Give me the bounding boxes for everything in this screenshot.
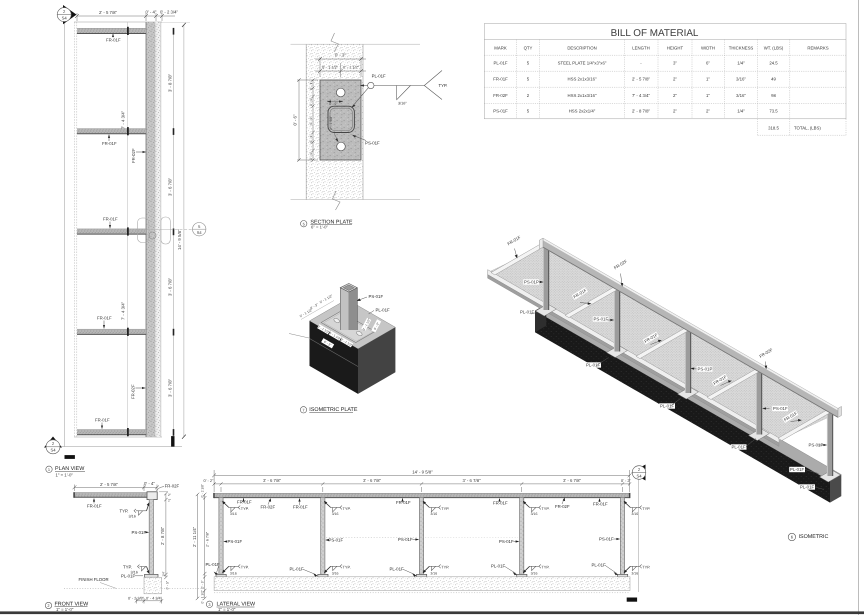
svg-text:PS-01F: PS-01F <box>398 537 413 542</box>
svg-text:PS-01F: PS-01F <box>599 537 614 542</box>
svg-text:0' - 4": 0' - 4" <box>144 481 155 486</box>
svg-text:FR-02F: FR-02F <box>493 93 508 98</box>
svg-text:FR-02F: FR-02F <box>131 384 136 399</box>
svg-text:PS-01F: PS-01F <box>329 538 344 543</box>
svg-text:3/16": 3/16" <box>736 93 746 98</box>
svg-text:3": 3" <box>673 61 677 66</box>
svg-text:PS-01F: PS-01F <box>594 317 609 322</box>
svg-text:S4: S4 <box>636 473 642 478</box>
svg-text:2": 2" <box>673 93 677 98</box>
svg-text:2": 2" <box>673 77 677 82</box>
svg-text:6" = 1'-0": 6" = 1'-0" <box>311 225 328 230</box>
svg-text:3/16: 3/16 <box>430 512 437 516</box>
svg-text:TOTAL, (LBS): TOTAL, (LBS) <box>794 126 821 131</box>
svg-text:TYP.: TYP. <box>642 506 650 511</box>
svg-text:3/16: 3/16 <box>332 512 339 516</box>
svg-text:TYP.: TYP. <box>343 506 351 511</box>
svg-text:PS-01P: PS-01P <box>524 280 539 285</box>
svg-text:0' - 2": 0' - 2" <box>204 478 215 483</box>
svg-text:3' - 6 7/8": 3' - 6 7/8" <box>263 478 282 483</box>
svg-text:PL-01F: PL-01F <box>290 567 304 572</box>
svg-text:2' - 6 7/8": 2' - 6 7/8" <box>205 531 209 547</box>
svg-text:1/4": 1/4" <box>737 61 745 66</box>
svg-text:PL-01F: PL-01F <box>790 467 804 472</box>
svg-text:3: 3 <box>208 602 210 607</box>
svg-text:PS-01P: PS-01P <box>698 367 713 372</box>
svg-text:0' - 2 1/8": 0' - 2 1/8" <box>201 484 205 497</box>
svg-text:7' - 4 3/4": 7' - 4 3/4" <box>121 301 126 320</box>
svg-text:0' - 1 1/2": 0' - 1 1/2" <box>322 66 339 70</box>
svg-text:318.5: 318.5 <box>768 126 779 131</box>
svg-text:14' - 9 5/8": 14' - 9 5/8" <box>177 229 182 250</box>
svg-text:LENGTH: LENGTH <box>632 45 649 50</box>
svg-text:1" = 1'-0": 1" = 1'-0" <box>56 472 74 477</box>
svg-text:0' - 1": 0' - 1" <box>309 134 313 142</box>
svg-text:MARK: MARK <box>494 45 507 50</box>
svg-text:0' - 2": 0' - 2" <box>621 478 632 483</box>
svg-text:3/16: 3/16 <box>430 572 437 576</box>
svg-text:3' - 8 7/8": 3' - 8 7/8" <box>168 73 173 92</box>
svg-text:ISOMETRIC PLATE: ISOMETRIC PLATE <box>309 407 358 413</box>
svg-text:1": 1" <box>706 77 710 82</box>
svg-text:2' - 5 7/8": 2' - 5 7/8" <box>632 77 651 82</box>
svg-text:FR-02F: FR-02F <box>131 148 136 163</box>
svg-text:PL-01F: PL-01F <box>121 573 135 578</box>
svg-text:BILL OF MATERIAL: BILL OF MATERIAL <box>611 28 699 39</box>
svg-text:FR-01F: FR-01F <box>87 504 102 509</box>
svg-text:7' - 4 3/4": 7' - 4 3/4" <box>121 110 126 129</box>
svg-text:FR-02F: FR-02F <box>165 484 180 489</box>
svg-text:PS-01F: PS-01F <box>132 530 147 535</box>
svg-text:PL-01F: PL-01F <box>732 445 746 450</box>
svg-text:3' - 6 7/8": 3' - 6 7/8" <box>168 177 173 196</box>
svg-text:0' - 4 3/4": 0' - 4 3/4" <box>146 597 163 601</box>
svg-text:PS-01F: PS-01F <box>773 406 788 411</box>
svg-text:TYP.: TYP. <box>123 565 132 570</box>
svg-text:TYP.: TYP. <box>541 506 549 511</box>
svg-text:3/16: 3/16 <box>531 572 538 576</box>
svg-text:0' - 1 1/2": 0' - 1 1/2" <box>343 66 360 70</box>
svg-text:FR-01F: FR-01F <box>593 502 608 507</box>
svg-text:3' - 6 7/8": 3' - 6 7/8" <box>168 277 173 296</box>
svg-text:TYP.: TYP. <box>441 506 449 511</box>
svg-text:PL-01F: PL-01F <box>800 485 814 490</box>
svg-text:S4: S4 <box>197 230 203 235</box>
svg-text:73.5: 73.5 <box>769 109 778 114</box>
svg-text:PL-01F: PL-01F <box>376 308 390 313</box>
svg-text:0' - 6": 0' - 6" <box>293 114 298 125</box>
svg-text:STEEL PLATE 1/4"x3"x6": STEEL PLATE 1/4"x3"x6" <box>558 61 607 66</box>
svg-text:FR-01F: FR-01F <box>293 505 308 510</box>
svg-text:TYP.: TYP. <box>439 83 448 88</box>
svg-text:24.5: 24.5 <box>769 61 778 66</box>
svg-text:PL-01F: PL-01F <box>493 61 507 66</box>
svg-text:2' - 5 7/8": 2' - 5 7/8" <box>100 482 119 487</box>
svg-text:2": 2" <box>706 109 710 114</box>
svg-text:0' - 2": 0' - 2" <box>329 102 338 106</box>
svg-text:1": 1" <box>706 93 710 98</box>
svg-text:FR-01F: FR-01F <box>493 77 508 82</box>
svg-text:0' - 2 3/8": 0' - 2 3/8" <box>128 597 145 601</box>
svg-text:6": 6" <box>706 61 710 66</box>
svg-text:0' - 1 1/2": 0' - 1 1/2" <box>201 590 205 603</box>
svg-text:2": 2" <box>168 499 171 503</box>
svg-text:2' - 11 1/4": 2' - 11 1/4" <box>192 526 197 547</box>
svg-text:DESCRIPTION: DESCRIPTION <box>567 45 596 50</box>
svg-text:1/4": 1/4" <box>737 109 745 114</box>
svg-text:2": 2" <box>168 493 171 497</box>
svg-text:TYP.: TYP. <box>343 565 351 570</box>
svg-text:THICKNESS: THICKNESS <box>729 45 754 50</box>
svg-text:TYP.: TYP. <box>241 506 249 511</box>
svg-text:PL-01F: PL-01F <box>586 363 600 368</box>
svg-text:2' - 5 7/8": 2' - 5 7/8" <box>99 10 118 15</box>
svg-text:PS-01F: PS-01F <box>365 140 380 145</box>
svg-text:S4: S4 <box>62 16 68 21</box>
svg-text:FR-01F: FR-01F <box>102 141 117 146</box>
svg-text:WT. (LBS): WT. (LBS) <box>764 45 784 50</box>
svg-text:0' - 5": 0' - 5" <box>201 580 205 588</box>
svg-text:0' - 2": 0' - 2" <box>309 116 313 124</box>
svg-text:98: 98 <box>771 93 776 98</box>
svg-text:FR-01F: FR-01F <box>396 500 411 505</box>
svg-text:PS-01F: PS-01F <box>228 539 243 544</box>
svg-text:HSS 2x1x3/16": HSS 2x1x3/16" <box>568 93 597 98</box>
svg-text:1: 1 <box>48 467 50 472</box>
svg-text:PLAN VIEW: PLAN VIEW <box>55 466 85 472</box>
svg-text:0' - 3": 0' - 3" <box>335 53 346 58</box>
svg-text:3/16: 3/16 <box>129 515 136 519</box>
svg-text:ISOMETRIC: ISOMETRIC <box>799 534 829 540</box>
svg-text:3/16": 3/16" <box>736 77 746 82</box>
svg-text:PL-01F: PL-01F <box>592 563 606 568</box>
svg-text:PL-01F: PL-01F <box>372 74 386 79</box>
svg-text:FR-01F: FR-01F <box>237 500 252 505</box>
svg-text:49: 49 <box>771 77 776 82</box>
svg-text:3/16: 3/16 <box>631 572 638 576</box>
svg-text:PL-01F: PL-01F <box>660 404 674 409</box>
svg-text:0' - 1 5/8": 0' - 1 5/8" <box>329 115 333 130</box>
svg-text:FR-01F: FR-01F <box>95 418 110 423</box>
svg-text:FR-01F: FR-01F <box>106 38 121 43</box>
svg-text:PL-01F: PL-01F <box>206 562 220 567</box>
svg-text:HSS 2x1x3/16": HSS 2x1x3/16" <box>568 77 597 82</box>
svg-text:PL-01F: PL-01F <box>390 567 404 572</box>
svg-text:FR-02F: FR-02F <box>261 505 276 510</box>
svg-text:7' - 4 3/4": 7' - 4 3/4" <box>632 93 651 98</box>
svg-text:2: 2 <box>47 603 49 608</box>
svg-text:14' - 9 5/8": 14' - 9 5/8" <box>412 470 433 475</box>
svg-text:3' - 6 7/8": 3' - 6 7/8" <box>168 378 173 397</box>
svg-text:PS-01F: PS-01F <box>493 109 508 114</box>
svg-text:FR-02F: FR-02F <box>555 504 570 509</box>
svg-text:TYP.: TYP. <box>120 509 129 514</box>
svg-text:3/16: 3/16 <box>631 512 638 516</box>
svg-text:QTY: QTY <box>524 45 533 50</box>
svg-text:FR-01F: FR-01F <box>97 316 112 321</box>
svg-text:TYP.: TYP. <box>441 565 449 570</box>
svg-text:5: 5 <box>303 221 305 226</box>
svg-text:1" = 1'-0": 1" = 1'-0" <box>56 607 74 612</box>
svg-text:0' - 5": 0' - 5" <box>166 580 170 589</box>
svg-text:3/16: 3/16 <box>230 572 237 576</box>
svg-text:TYP.: TYP. <box>241 565 249 570</box>
svg-text:2' - 8 7/8": 2' - 8 7/8" <box>632 109 651 114</box>
svg-text:HEIGHT: HEIGHT <box>667 45 684 50</box>
svg-text:S4: S4 <box>50 448 56 453</box>
svg-text:7: 7 <box>302 407 304 412</box>
svg-text:0' - 1": 0' - 1" <box>309 81 313 89</box>
svg-text:3' - 6 7/8": 3' - 6 7/8" <box>463 478 482 483</box>
svg-text:0' - 1": 0' - 1" <box>309 152 313 160</box>
svg-text:0' - 2 3/4": 0' - 2 3/4" <box>160 10 179 15</box>
svg-text:3' - 6 7/8": 3' - 6 7/8" <box>563 478 582 483</box>
svg-text:HSS 2x2x1/4": HSS 2x2x1/4" <box>569 109 596 114</box>
svg-text:PL-01F: PL-01F <box>491 564 505 569</box>
svg-text:3/16": 3/16" <box>398 102 407 106</box>
svg-text:FINISH FLOOR: FINISH FLOOR <box>79 577 109 582</box>
svg-text:0' - 1": 0' - 1" <box>309 98 313 106</box>
svg-text:1/4": 1/4" <box>162 571 166 576</box>
svg-text:2' - 8 7/8": 2' - 8 7/8" <box>160 526 165 545</box>
svg-text:TYP.: TYP. <box>642 565 650 570</box>
svg-text:1" = 1'-0": 1" = 1'-0" <box>218 607 236 612</box>
svg-text:WIDTH: WIDTH <box>701 45 715 50</box>
svg-text:FR-01F: FR-01F <box>103 217 118 222</box>
svg-text:PS-01F: PS-01F <box>369 294 384 299</box>
svg-text:2": 2" <box>673 109 677 114</box>
svg-text:TYP.: TYP. <box>541 565 549 570</box>
svg-text:3/16: 3/16 <box>531 512 538 516</box>
svg-text:0' - 4": 0' - 4" <box>146 10 157 15</box>
svg-text:3/16: 3/16 <box>230 512 237 516</box>
svg-text:3/16: 3/16 <box>332 572 339 576</box>
svg-text:REMARKS: REMARKS <box>807 45 828 50</box>
svg-text:3' - 6 7/8": 3' - 6 7/8" <box>363 478 382 483</box>
svg-text:PS-01F: PS-01F <box>499 539 514 544</box>
